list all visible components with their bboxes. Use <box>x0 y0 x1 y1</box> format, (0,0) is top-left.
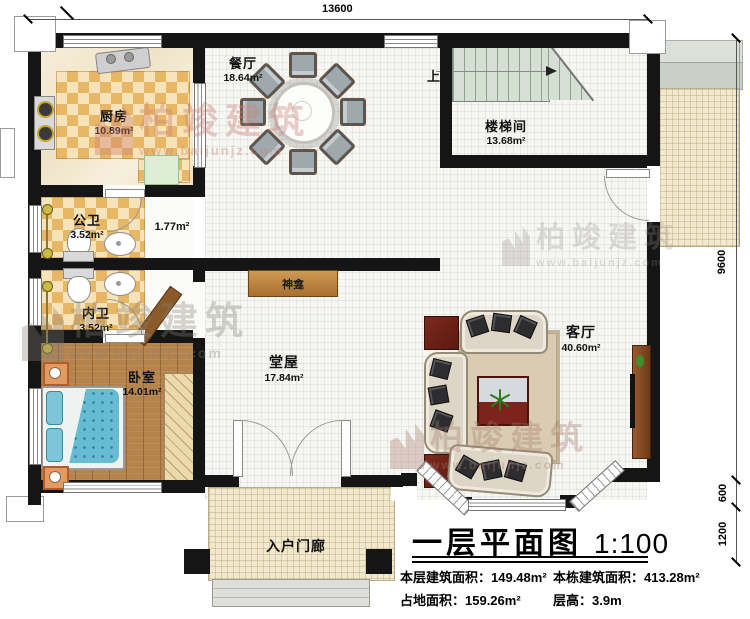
room-area: 13.68m² <box>485 135 527 147</box>
porch-column <box>366 549 392 574</box>
stat-floor-area: 本层建筑面积：149.48m² <box>400 567 547 586</box>
room-label-stairwell: 楼梯间 13.68m² <box>485 116 527 147</box>
room-label-public-bath: 公卫 3.52m² <box>70 210 103 241</box>
wall-hall-left-upper <box>193 258 205 282</box>
plant-icon <box>488 388 512 412</box>
shower-knob <box>42 281 53 292</box>
tv-screen <box>630 374 635 428</box>
bed-pillow <box>46 428 63 462</box>
shrine-label: 神龛 <box>282 276 304 292</box>
room-name: 堂屋 <box>264 352 303 372</box>
room-label-porch: 入户门廊 <box>266 536 326 556</box>
chimney-box <box>629 20 666 54</box>
porch-column <box>184 549 210 574</box>
dining-chair <box>290 150 316 174</box>
room-area: 17.84m² <box>264 372 303 384</box>
end-table <box>424 316 459 350</box>
floor-plan-canvas: 神龛 <box>0 0 750 619</box>
room-label-kitchen: 厨房 10.89m² <box>94 106 133 137</box>
shower-knob <box>42 343 53 354</box>
patio-step-lower <box>653 62 743 90</box>
toilet <box>67 276 91 303</box>
title-underline-thin <box>412 561 648 563</box>
window <box>63 482 162 493</box>
stair-direction-line <box>436 71 548 72</box>
stove-burner <box>37 101 54 118</box>
dimension-label-top: 13600 <box>322 3 353 15</box>
dining-chair <box>290 53 316 77</box>
kitchen-cabinet <box>144 155 179 185</box>
room-area: 3.52m² <box>79 322 112 334</box>
room-area: 18.64m² <box>223 72 262 84</box>
patio-floor <box>653 88 740 247</box>
toilet-tank <box>63 251 94 262</box>
kitchen-sink-faucet <box>124 52 134 62</box>
porch-steps <box>212 579 370 607</box>
room-label-private-bath: 内卫 3.52m² <box>79 303 112 334</box>
dimension-label-bay: 600 <box>717 484 729 502</box>
window <box>29 278 42 326</box>
dimension-label-porch: 1200 <box>717 522 729 546</box>
room-name: 客厅 <box>561 322 600 342</box>
dining-table-center <box>292 101 312 121</box>
up-label: 上 <box>427 66 441 85</box>
room-area: 3.52m² <box>70 229 103 241</box>
room-name: 入户门廊 <box>266 536 326 556</box>
chimney-box <box>14 16 56 52</box>
room-label-living: 客厅 40.60m² <box>561 322 600 354</box>
room-area: 1.77m² <box>155 221 190 233</box>
sofa-pillow <box>480 459 502 481</box>
wall-bath-divider <box>28 258 205 270</box>
dimension-tick <box>60 6 74 20</box>
wall-bay-stub-a <box>401 473 417 486</box>
room-name: 内卫 <box>79 303 112 322</box>
window <box>29 205 42 253</box>
wall-stair-bottom <box>440 155 647 168</box>
window <box>384 35 438 48</box>
nightstand-lamp <box>49 367 61 379</box>
patio-edge-line <box>739 40 740 245</box>
patio-step-upper <box>653 40 743 64</box>
french-door-leaf <box>341 420 351 477</box>
wardrobe <box>164 373 195 493</box>
kitchen-slider-door <box>194 83 206 168</box>
stat-story-height: 层高：3.9m <box>553 590 622 609</box>
dimension-line-right <box>736 38 737 562</box>
nightstand-lamp <box>49 471 61 483</box>
room-label-main-hall: 堂屋 17.84m² <box>264 352 303 384</box>
sofa-pillow <box>491 313 512 333</box>
window <box>29 388 42 465</box>
stair-up-label: 上 <box>427 66 441 85</box>
corridor-area-label: 1.77m² <box>155 221 190 233</box>
room-name: 厨房 <box>94 106 133 125</box>
stove-burner <box>37 125 54 142</box>
wall-stair-left <box>440 33 452 168</box>
window <box>63 35 162 48</box>
title-underline-thick <box>412 556 648 558</box>
room-label-dining: 餐厅 18.64m² <box>223 53 262 84</box>
room-name: 公卫 <box>70 210 103 229</box>
room-name: 楼梯间 <box>485 116 527 135</box>
shower-knob <box>42 248 53 259</box>
stat-footprint-area: 占地面积：159.26m² <box>400 590 521 609</box>
dining-chair <box>241 99 265 125</box>
shower-rail <box>46 284 48 346</box>
dining-chair <box>341 99 365 125</box>
kitchen-sink-faucet <box>106 54 116 64</box>
bath-sink-drain <box>116 241 121 246</box>
room-area: 14.01m² <box>122 386 161 398</box>
room-name: 卧室 <box>122 367 161 386</box>
bath-sink-drain <box>116 281 121 286</box>
plan-scale: 1:100 <box>594 528 669 559</box>
stat-building-area: 本栋建筑面积：413.28m² <box>553 567 700 586</box>
dimension-label-right: 9600 <box>716 250 728 274</box>
dimension-line-top <box>28 19 648 20</box>
room-area: 10.89m² <box>94 125 133 137</box>
door-gap <box>193 282 205 338</box>
stair-direction-arrow-icon <box>546 66 557 76</box>
grid-cover-patch <box>391 487 417 501</box>
shower-knob <box>42 204 53 215</box>
wall-kitchen-right-upper <box>193 48 205 83</box>
exterior-pad <box>0 128 15 178</box>
sofa-pillow <box>428 384 450 405</box>
shrine-table: 神龛 <box>248 270 338 297</box>
cabinet-plant-icon <box>636 355 644 367</box>
bay-window-center <box>468 499 566 511</box>
bed-pillow <box>46 391 63 425</box>
door-leaf <box>105 334 145 343</box>
wall-hall-left-lower <box>193 338 205 480</box>
room-label-bedroom: 卧室 14.01m² <box>122 367 161 398</box>
room-name: 餐厅 <box>223 53 262 72</box>
room-area: 40.60m² <box>561 342 600 354</box>
